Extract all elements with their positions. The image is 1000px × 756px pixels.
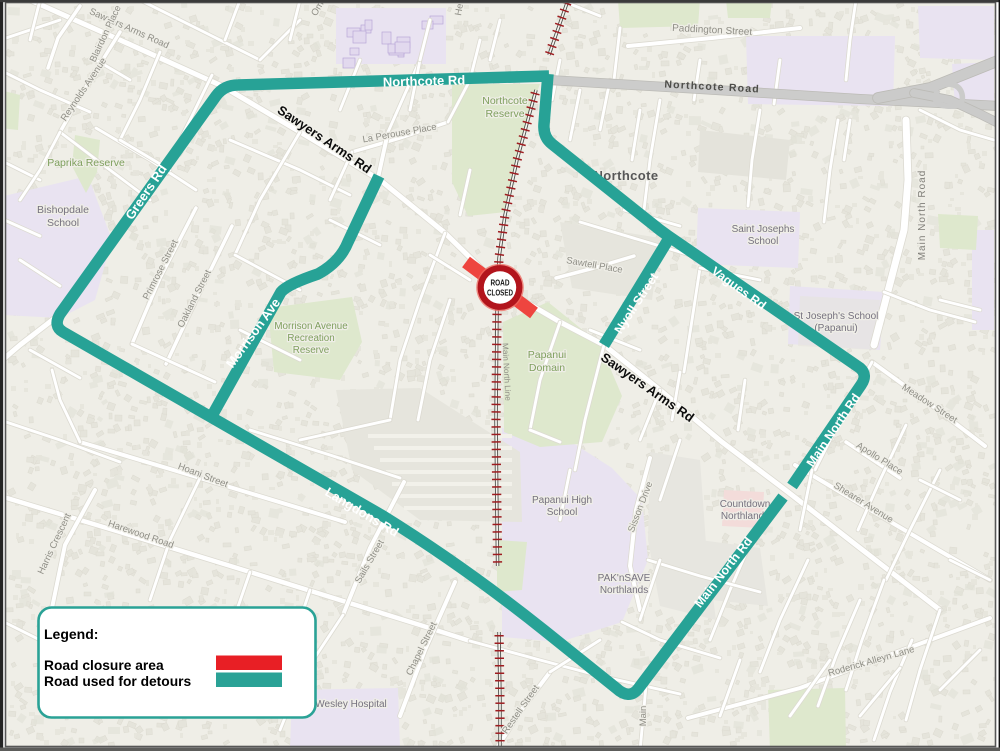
svg-text:School: School bbox=[748, 236, 779, 247]
svg-text:Main: Main bbox=[638, 706, 649, 727]
svg-text:Recreation: Recreation bbox=[287, 333, 334, 344]
svg-text:School: School bbox=[47, 217, 79, 229]
svg-text:Saint Josephs: Saint Josephs bbox=[732, 224, 795, 235]
svg-text:Road used for detours: Road used for detours bbox=[44, 674, 192, 689]
svg-text:Papanui: Papanui bbox=[528, 349, 567, 361]
svg-text:Reserve: Reserve bbox=[293, 345, 330, 356]
svg-text:Main North Road: Main North Road bbox=[917, 170, 928, 261]
svg-text:Domain: Domain bbox=[529, 362, 565, 374]
svg-text:ROAD: ROAD bbox=[491, 278, 510, 288]
svg-text:Legend:: Legend: bbox=[44, 626, 98, 642]
svg-text:CLOSED: CLOSED bbox=[487, 288, 513, 298]
svg-text:Bishopdale: Bishopdale bbox=[37, 204, 89, 216]
svg-text:Northlands: Northlands bbox=[600, 585, 648, 596]
svg-text:Paprika Reserve: Paprika Reserve bbox=[47, 157, 125, 169]
svg-text:Northcote Rd: Northcote Rd bbox=[383, 72, 466, 89]
svg-text:Road closure area: Road closure area bbox=[44, 658, 164, 673]
svg-text:(Papanui): (Papanui) bbox=[814, 323, 857, 334]
svg-text:Northcote: Northcote bbox=[482, 95, 528, 107]
svg-text:He: He bbox=[453, 3, 466, 17]
svg-text:School: School bbox=[547, 507, 578, 518]
svg-text:Papanui High: Papanui High bbox=[532, 495, 592, 506]
svg-text:St Joseph's School: St Joseph's School bbox=[794, 311, 879, 322]
svg-text:Reserve: Reserve bbox=[485, 108, 524, 120]
svg-text:PAK'nSAVE: PAK'nSAVE bbox=[598, 573, 651, 584]
svg-text:Wesley Hospital: Wesley Hospital bbox=[315, 699, 387, 710]
svg-text:Countdown: Countdown bbox=[720, 499, 771, 510]
svg-text:Morrison Avenue: Morrison Avenue bbox=[274, 321, 348, 332]
